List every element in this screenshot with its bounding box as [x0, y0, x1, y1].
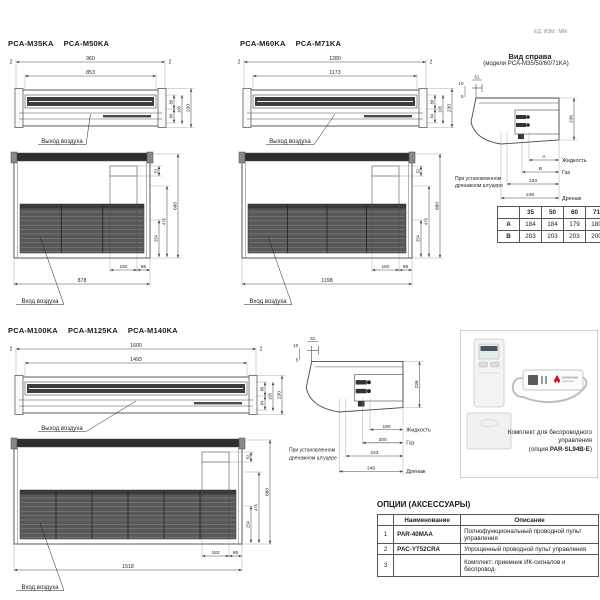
kit-caption-line: управления: [467, 437, 592, 445]
dim-label: 236: [414, 380, 420, 388]
dim-label: 85: [233, 550, 239, 556]
dim-label: 254: [245, 520, 250, 528]
side-view-small-drawing: 51105236AЖидкостьBГаз233246ДренажПри уст…: [452, 72, 599, 206]
pipe-label: Жидкость: [562, 158, 587, 164]
dim-label: 680: [264, 488, 270, 496]
model-name: PCA-M140KA: [128, 326, 178, 335]
dim-label: 1600: [130, 343, 142, 349]
dim-label: 2: [10, 347, 13, 353]
wireless-kit-photo: Комплект для беспроводного управления (о…: [460, 330, 598, 478]
air-inlet-label: Вход воздуха: [21, 585, 59, 591]
model-name: PCA-M71KA: [296, 39, 342, 48]
dim-label: 236: [568, 115, 574, 123]
front-view-mid-drawing: 12802211738884195230Выход воздуха: [230, 50, 458, 150]
dim-label: 195: [267, 392, 272, 400]
options-num-header: [378, 515, 394, 526]
ab-cell: 203: [542, 231, 564, 243]
dim-label: 680: [434, 202, 440, 210]
table-row: 1 PAR-40MAA Полнофункциональный проводно…: [378, 526, 599, 544]
table-row: A 184 184 179 180: [498, 219, 600, 231]
ab-col-header: 35: [520, 207, 542, 219]
model-name: PCA-M100KA: [8, 326, 58, 335]
dim-label: 246: [367, 466, 375, 472]
model-name: PCA-M50KA: [64, 39, 110, 48]
kit-caption-line: (опция PAR-SL94B-E): [467, 446, 592, 454]
kit-caption-suffix: ): [590, 446, 592, 453]
option-desc: Упрощенный проводной пульт управления: [461, 544, 599, 555]
dim-label: 1173: [329, 70, 340, 76]
wireless-kit-image: [461, 331, 597, 431]
dim-label: 85: [403, 264, 409, 270]
dim-label: 5: [296, 357, 299, 362]
dim-label: 88: [168, 99, 173, 104]
dim-label: 1198: [321, 278, 332, 284]
pipe-label: Газ: [406, 441, 415, 447]
catalog-page: ЕД. ИЗМ.: ММ PCA-M35KAPCA-M50KA PCA-M60K…: [0, 0, 600, 600]
drain-note: дренажном штуцере: [289, 455, 337, 461]
ab-cell: 203: [520, 231, 542, 243]
ab-corner-cell: [498, 207, 520, 219]
dim-label: 51: [474, 75, 480, 80]
options-table: Наименование Описание 1 PAR-40MAA Полноф…: [377, 514, 599, 577]
ab-cell: 184: [542, 219, 564, 231]
dim-label: 1280: [329, 56, 341, 62]
side-view-large-drawing-svg: 51105236180Жидкость200Газ233246ДренажПри…: [286, 333, 447, 481]
dim-label: 233: [370, 450, 378, 456]
remote-button: [491, 362, 500, 367]
option-name: PAC-YT52CRA: [394, 544, 461, 555]
options-name-header: Наименование: [394, 515, 461, 526]
dim-label: 10: [458, 81, 464, 86]
dim-label: 200: [379, 437, 387, 443]
option-num: 3: [378, 555, 394, 577]
dim-label: 1518: [122, 564, 134, 570]
dim-label: 84: [168, 113, 173, 118]
dim-label: 2: [169, 60, 172, 66]
ab-dimension-table: 35 50 60 71 A 184 184 179 180 B 203 203 …: [497, 206, 600, 243]
front-view-small-drawing-svg: 960228538884195230Выход воздуха: [2, 50, 197, 150]
side-view-large-drawing: 51105236180Жидкость200Газ233246ДренажПри…: [286, 333, 447, 481]
dim-label: 52: [415, 168, 420, 173]
dim-label: 51: [310, 336, 316, 341]
dim-label: 2: [10, 60, 13, 66]
ab-cell: 179: [564, 219, 586, 231]
ab-row-label: B: [498, 231, 520, 243]
front-view-small-drawing: 960228538884195230Выход воздуха: [2, 50, 197, 150]
wireless-kit-caption: Комплект для беспроводного управления (о…: [467, 429, 592, 454]
dim-label: 182: [381, 264, 389, 270]
options-desc-header: Описание: [461, 515, 599, 526]
dim-label: 52: [245, 454, 250, 459]
receiver-detail: [545, 376, 547, 384]
ir-receiver-window: [528, 375, 538, 385]
dim-label: 254: [415, 234, 420, 242]
dim-label: 88: [429, 99, 434, 104]
side-view-title: Вид справа: [470, 52, 590, 61]
ab-cell: 200: [586, 231, 600, 243]
drain-note: При установленном: [289, 448, 336, 454]
section-large-title: PCA-M100KAPCA-M125KAPCA-M140KA: [8, 326, 188, 335]
drain-note: При установленном: [455, 176, 502, 182]
dim-label: 52: [153, 168, 158, 173]
dim-label: 246: [526, 192, 534, 198]
air-outlet-label: Выход воздуха: [269, 139, 311, 145]
dim-label: 960: [86, 56, 95, 62]
receiver-brand-text: [562, 381, 574, 383]
section-mid-title: PCA-M60KAPCA-M71KA: [240, 39, 351, 48]
dim-label: 254: [153, 234, 158, 242]
remote-display-segment: [481, 346, 498, 351]
dim-label: 2: [260, 347, 263, 353]
dim-label: 853: [86, 70, 95, 76]
ab-col-header: 71: [586, 207, 600, 219]
kit-caption-prefix: (опция: [529, 446, 550, 453]
dim-label: 233: [529, 178, 537, 184]
model-name: PCA-M35KA: [8, 39, 54, 48]
receiver-brand-text: [562, 377, 578, 379]
remote-button: [479, 362, 488, 367]
front-view-mid-drawing-svg: 12802211738884195230Выход воздуха: [230, 50, 458, 150]
dim-label: 2: [430, 60, 433, 66]
drain-note: дренажном штуцере: [455, 183, 503, 189]
dim-label: 88: [259, 386, 264, 391]
dim-label: 230: [276, 391, 282, 399]
table-row: 3 Комплект: приемник ИК-сигналов и беспр…: [378, 555, 599, 577]
dim-label: 180: [382, 424, 390, 430]
option-name: PAR-40MAA: [394, 526, 461, 544]
option-name: [394, 555, 461, 577]
kit-caption-line: Комплект для беспроводного: [467, 429, 592, 437]
dim-label: B: [539, 166, 542, 172]
pipe-label: Дренаж: [406, 469, 426, 475]
ab-col-header: 60: [564, 207, 586, 219]
dim-label: 230: [185, 104, 191, 112]
option-desc: Полнофункциональный проводной пульт упра…: [461, 526, 599, 544]
air-inlet-label: Вход воздуха: [249, 299, 287, 305]
front-view-large-drawing-svg: 16002214938884195230Выход воздуха: [2, 337, 288, 437]
bottom-view-mid-drawing: 52254476680182851198Вход воздуха: [230, 148, 448, 308]
ab-cell: 184: [520, 219, 542, 231]
pipe-label: Газ: [562, 170, 571, 176]
dim-label: 680: [172, 202, 178, 210]
options-title: ОПЦИИ (АКСЕССУАРЫ): [377, 500, 470, 509]
dim-label: 182: [119, 264, 127, 270]
ab-row-label: A: [498, 219, 520, 231]
ab-cell: 203: [564, 231, 586, 243]
side-view-subtitle: (модели PCA-M35/50/60/71KA): [452, 61, 600, 67]
pipe-label: Жидкость: [406, 427, 431, 433]
bottom-view-mid-drawing-svg: 52254476680182851198Вход воздуха: [230, 148, 448, 308]
bottom-view-small-drawing: 5225447668018285878Вход воздуха: [2, 148, 186, 308]
dim-label: 85: [141, 264, 147, 270]
dim-label: 476: [423, 217, 428, 225]
section-small-title: PCA-M35KAPCA-M50KA: [8, 39, 119, 48]
receiver-detail: [541, 376, 543, 384]
bottom-view-small-drawing-svg: 5225447668018285878Вход воздуха: [2, 148, 186, 308]
pipe-label: Дренаж: [562, 196, 582, 202]
dim-label: 878: [78, 278, 87, 284]
model-name: PCA-M60KA: [240, 39, 286, 48]
dim-label: 476: [161, 217, 166, 225]
dim-label: 476: [253, 503, 258, 511]
options-table-wrapper: Наименование Описание 1 PAR-40MAA Полноф…: [377, 514, 599, 600]
dim-label: 5: [461, 94, 464, 99]
front-view-large-drawing: 16002214938884195230Выход воздуха: [2, 337, 288, 437]
dim-label: 1493: [130, 357, 142, 363]
option-num: 1: [378, 526, 394, 544]
dim-label: 84: [259, 400, 264, 405]
ab-col-header: 50: [542, 207, 564, 219]
kit-option-code: PAR-SL94B-E: [550, 446, 590, 453]
option-num: 2: [378, 544, 394, 555]
dim-label: 10: [293, 343, 299, 348]
dim-label: 195: [437, 105, 442, 113]
ab-cell: 180: [586, 219, 600, 231]
air-outlet-label: Выход воздуха: [41, 426, 83, 432]
units-note: ЕД. ИЗМ.: ММ: [534, 29, 567, 35]
option-desc: Комплект: приемник ИК-сигналов и беспров…: [461, 555, 599, 577]
model-name: PCA-M125KA: [68, 326, 118, 335]
dim-label: 195: [176, 105, 181, 113]
dim-label: 84: [429, 113, 434, 118]
side-view-small-drawing-svg: 51105236AЖидкостьBГаз233246ДренажПри уст…: [452, 72, 599, 206]
dim-label: 2: [238, 60, 241, 66]
air-outlet-label: Выход воздуха: [41, 139, 83, 145]
dim-label: A: [542, 154, 546, 160]
table-row: B 203 203 203 200: [498, 231, 600, 243]
bottom-view-large-drawing-svg: 52254476680182851518Вход воздуха: [2, 434, 278, 594]
table-row: 2 PAC-YT52CRA Упрощенный проводной пульт…: [378, 544, 599, 555]
air-inlet-label: Вход воздуха: [21, 299, 59, 305]
bottom-view-large-drawing: 52254476680182851518Вход воздуха: [2, 434, 278, 594]
dim-label: 182: [211, 550, 219, 556]
